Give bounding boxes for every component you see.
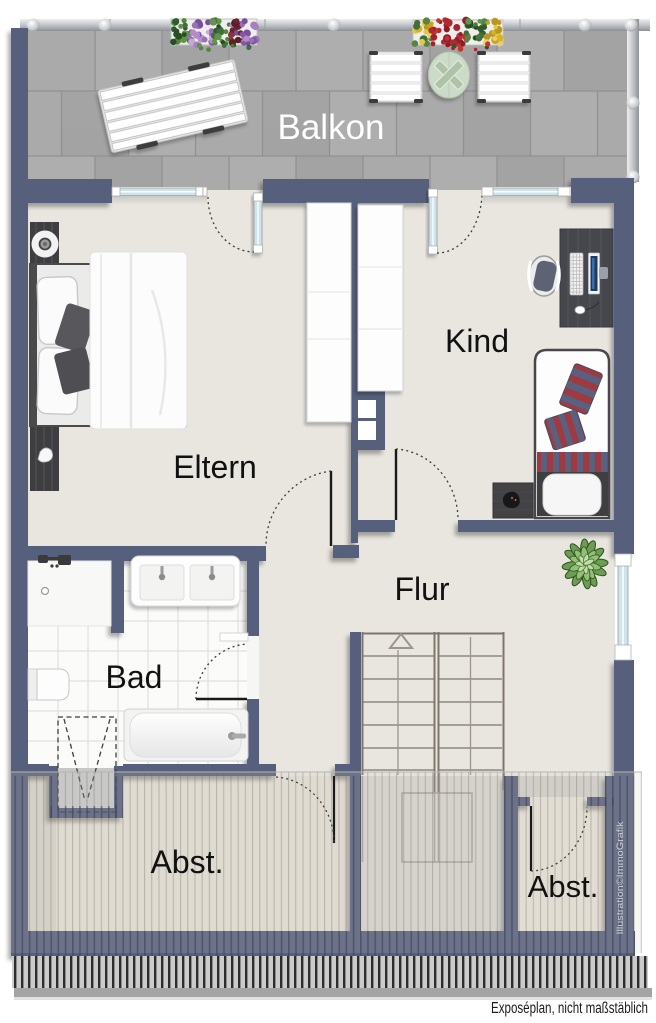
svg-text:Kind: Kind [445,323,509,359]
svg-text:Eltern: Eltern [173,449,257,485]
svg-text:Abst.: Abst. [151,844,224,880]
svg-text:Exposéplan, nicht maßstäblich: Exposéplan, nicht maßstäblich [491,1000,648,1017]
svg-text:Abst.: Abst. [528,869,599,904]
svg-text:Flur: Flur [394,571,449,607]
svg-text:Illustration©ImmoGrafik: Illustration©ImmoGrafik [615,821,625,935]
svg-text:Bad: Bad [106,659,163,695]
svg-text:Balkon: Balkon [277,108,384,147]
